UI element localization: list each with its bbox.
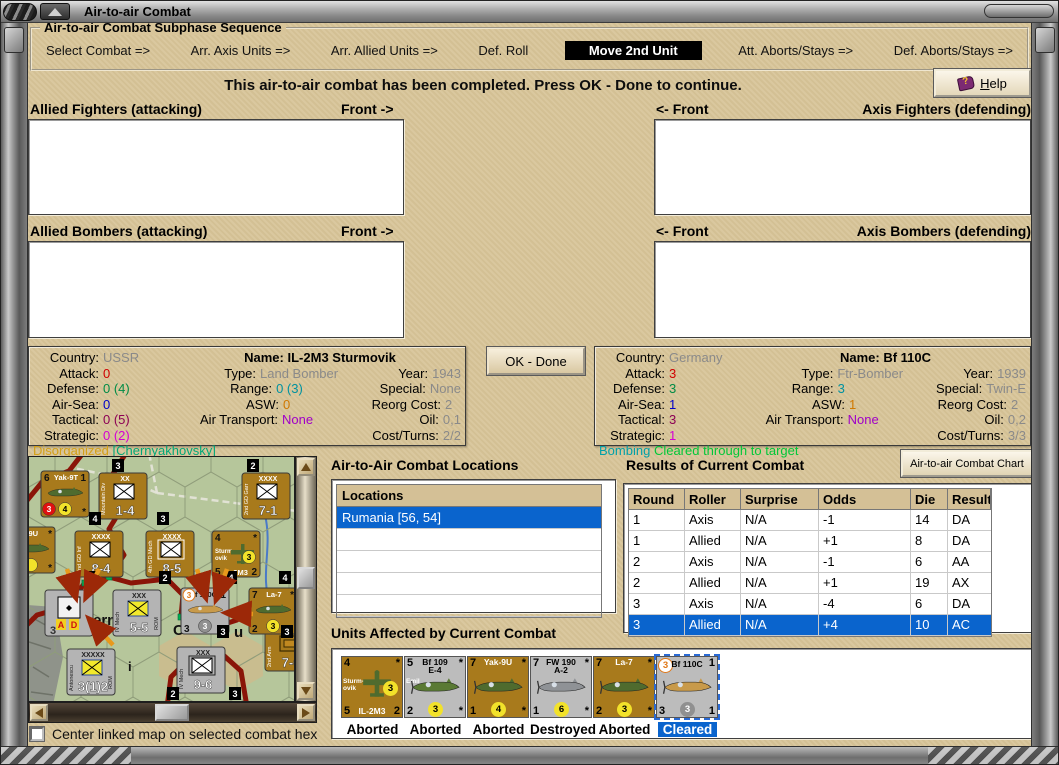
svg-text:4: 4 (215, 533, 221, 544)
front-arrow-label: Front -> (341, 223, 394, 239)
allied-unit-name: Name: IL-2M3 Sturmovik (179, 350, 461, 366)
help-book-icon (957, 75, 975, 91)
svg-text:XXX: XXX (132, 593, 146, 600)
svg-text:XXXX: XXXX (259, 476, 278, 483)
svg-text:3: 3 (203, 621, 208, 631)
sequence-step-6: Att. Aborts/Stays => (734, 41, 857, 60)
plane-icon (662, 677, 714, 695)
axis-asw: 1 (849, 397, 856, 413)
titlebar-end-decoration (984, 4, 1054, 18)
front-arrow-label: Front -> (341, 101, 394, 117)
scroll-right-icon (302, 708, 310, 718)
svg-text:Mountain Div: Mountain Div (101, 483, 107, 515)
allied-costturns: 2/2 (443, 428, 461, 444)
unit-counter[interactable]: 7La-7*2*3 (593, 656, 655, 718)
location-row-empty[interactable] (337, 529, 601, 551)
scroll-left-icon (35, 708, 43, 718)
sequence-step-1: Select Combat => (42, 41, 154, 60)
allied-defense: 0 (4) (103, 381, 130, 397)
counter-bname: IL-2M3 (342, 706, 402, 716)
axis-country: Germany (669, 350, 722, 366)
axis-bombers-label: Axis Bombers (defending) (857, 223, 1031, 239)
combat-results-title: Results of Current Combat (626, 457, 804, 473)
svg-text:5-5: 5-5 (130, 620, 149, 635)
sequence-step-2: Arr. Axis Units => (187, 41, 295, 60)
scroll-left-button[interactable] (30, 704, 48, 721)
result-row[interactable]: 2AlliedN/A+119AX PX (629, 573, 991, 594)
subphase-sequence-steps: Select Combat =>Arr. Axis Units =>Arr. A… (32, 41, 1027, 60)
svg-text:4: 4 (228, 573, 233, 583)
svg-text:4: 4 (92, 514, 97, 524)
svg-text:3: 3 (232, 689, 237, 699)
allied-fighters-list[interactable] (28, 119, 404, 215)
combat-locations-box: LocationsRumania [56, 54] (331, 479, 616, 613)
counter-circle: 3 (680, 702, 695, 717)
affected-unit-yak-9u: 7Yak-9U*1*4Aborted (467, 656, 530, 737)
plane-icon-wrap (473, 677, 525, 698)
map-vertical-scrollbar[interactable] (295, 456, 317, 702)
allied-asw: 0 (283, 397, 290, 413)
dialog-content: Air-to-air Combat Subphase Sequence Sele… (28, 23, 1033, 746)
unit-status: Aborted (341, 722, 404, 737)
svg-text:3(1)2: 3(1)2 (78, 679, 108, 694)
axis-unit-stats-panel: Country:Germany Name: Bf 110C Attack:3 T… (594, 346, 1031, 446)
result-row[interactable]: 1AxisN/A-114DA (629, 510, 991, 531)
help-button[interactable]: Help (934, 69, 1031, 97)
axis-fighters-label: Axis Fighters (defending) (862, 101, 1031, 117)
results-table: RoundRollerSurpriseOddsDieResult1AxisN/A… (628, 488, 992, 637)
allied-bombers-list[interactable] (28, 241, 404, 338)
plane-icon-wrap (536, 677, 588, 698)
scroll-down-button[interactable] (297, 682, 315, 700)
result-row[interactable]: 1AlliedN/A+18DA (629, 531, 991, 552)
counter-circle: 4 (491, 702, 506, 717)
sequence-step-4: Def. Roll (474, 41, 532, 60)
svg-text:*: * (48, 529, 52, 540)
axis-reorg: 2 (1011, 397, 1018, 413)
allied-airsea: 0 (103, 397, 110, 413)
completion-message: This air-to-air combat has been complete… (28, 77, 938, 94)
svg-text:1: 1 (220, 590, 226, 601)
allied-fighters-label: Allied Fighters (attacking) (30, 101, 202, 117)
counter-tr: * (522, 657, 526, 669)
allied-unit-stats-panel: Country:USSR Name: IL-2M3 Sturmovik Atta… (28, 346, 466, 446)
affected-unit-bf-110c: 3Bf 110C1313Cleared (656, 656, 719, 737)
counter-circle: 3 (383, 681, 398, 696)
counter-br: 1 (709, 705, 715, 717)
counter-title: La-7 (594, 658, 654, 666)
svg-text:9-6: 9-6 (194, 677, 213, 692)
axis-unit-name: Name: Bf 110C (745, 350, 1026, 366)
titlebar: Air-to-air Combat (1, 1, 1058, 23)
svg-text:*: * (82, 507, 86, 518)
triangle-icon (48, 8, 62, 16)
counter-br: * (648, 705, 652, 717)
sequence-step-3: Arr. Allied Units => (327, 41, 442, 60)
axis-airtransport: None (848, 412, 879, 428)
location-row-empty[interactable] (337, 573, 601, 595)
svg-text:*: * (253, 533, 257, 544)
svg-text:3: 3 (184, 624, 190, 635)
front-arrow-label: <- Front (656, 223, 709, 239)
result-row[interactable]: 3AxisN/A-46DA (629, 594, 991, 615)
axis-bombers-list[interactable] (654, 241, 1031, 338)
combat-map: ernCuiXX1-4Mountain DivXXXX7-12nd GD Gar… (28, 456, 318, 724)
counter-side: Sturm-ovik (343, 679, 364, 692)
svg-text:*: * (290, 590, 294, 601)
svg-text:3: 3 (50, 625, 56, 637)
affected-unit-fw-190-a-2: 7FW 190A-2*1*6Destroyed (530, 656, 593, 737)
unit-status: Cleared (656, 722, 719, 737)
svg-text:IV Mech: IV Mech (179, 669, 185, 689)
ok-done-button[interactable]: OK - Done (487, 347, 585, 375)
air-combat-window: Air-to-air Combat Air-to-air Combat Subp… (0, 0, 1059, 765)
allied-reorg: 2 (445, 397, 452, 413)
axis-tactical: 3 (669, 412, 676, 428)
counter-bl: 2 (407, 705, 413, 717)
unit-counter[interactable]: 4*Sturm-ovik52IL-2M33 (341, 656, 403, 718)
svg-text:D: D (71, 620, 78, 630)
map-horizontal-scrollbar[interactable] (28, 702, 317, 723)
allied-range: 0 (3) (276, 381, 303, 397)
counter-tr: * (648, 657, 652, 669)
vertical-scroll-thumb[interactable] (297, 567, 315, 589)
combat-chart-button[interactable]: Air-to-air Combat Chart (901, 450, 1033, 477)
counter-circle: 3 (428, 702, 443, 717)
counter-br: * (522, 705, 526, 717)
svg-text:1-4: 1-4 (116, 503, 136, 518)
svg-text:2: 2 (250, 461, 255, 471)
svg-text:ROM: ROM (108, 676, 114, 689)
svg-text:Antonescu: Antonescu (69, 665, 75, 691)
result-row[interactable]: 2AxisN/A-16AA (629, 552, 991, 573)
counter-bl: 3 (659, 705, 665, 717)
allied-airtransport: None (282, 412, 313, 428)
svg-text:3: 3 (271, 621, 276, 631)
unit-status: Destroyed (530, 722, 593, 737)
plane-icon (410, 677, 462, 695)
location-row[interactable]: Rumania [56, 54] (337, 507, 601, 529)
svg-text:5: 5 (215, 567, 221, 578)
axis-strategic: 1 (669, 428, 676, 444)
counter-tl: 4 (344, 657, 350, 669)
counter-title: FW 190A-2 (531, 658, 591, 674)
plane-icon-wrap (599, 677, 651, 698)
allied-year: 1943 (432, 366, 461, 382)
svg-text:*: * (48, 563, 52, 574)
axis-range: 3 (838, 381, 845, 397)
svg-text:2: 2 (162, 573, 167, 583)
result-row[interactable]: 3AlliedN/A+410AC (629, 615, 991, 636)
units-affected-title: Units Affected by Current Combat (331, 625, 556, 641)
affected-unit-bf-109-e-4: 5Bf 109E-4*Emil2*3Aborted (404, 656, 467, 737)
svg-text:La-7: La-7 (266, 590, 281, 599)
counter-tr: 1 (709, 657, 715, 669)
allied-special: None (430, 381, 461, 397)
counter-bl: 2 (596, 705, 602, 717)
unit-counter[interactable]: 5Bf 109E-4*Emil2*3 (404, 656, 466, 718)
svg-text:3: 3 (160, 514, 165, 524)
svg-text:IV Mech: IV Mech (115, 612, 121, 632)
minimize-button[interactable] (40, 3, 70, 20)
counter-circle: 6 (554, 702, 569, 717)
axis-oil: 0,2 (1008, 412, 1026, 428)
allied-strategic: 0 (2) (103, 428, 130, 444)
window-frame-left (1, 23, 28, 746)
allied-bombers-label: Allied Bombers (attacking) (30, 223, 207, 239)
axis-special: Twin-E (986, 381, 1026, 397)
svg-text:1: 1 (80, 473, 86, 484)
allied-country: USSR (103, 350, 139, 366)
unit-status: Aborted (467, 722, 530, 737)
svg-text:XX: XX (120, 476, 130, 483)
combat-locations-title: Air-to-Air Combat Locations (331, 457, 518, 473)
front-arrow-label: <- Front (656, 101, 709, 117)
axis-year: 1939 (997, 366, 1026, 382)
locations-header: Locations (337, 485, 601, 507)
sequence-step-7: Def. Aborts/Stays => (890, 41, 1017, 60)
axis-attack: 3 (669, 366, 676, 382)
affected-unit-il-2m3: 4*Sturm-ovik52IL-2M33Aborted (341, 656, 404, 737)
window-frame-bottom (1, 746, 1058, 765)
plane-icon (473, 677, 525, 695)
axis-costturns: 3/3 (1008, 428, 1026, 444)
svg-text:ROM: ROM (154, 617, 160, 630)
counter-bl: 1 (533, 705, 539, 717)
frame-knob (4, 27, 24, 53)
svg-text:2: 2 (252, 624, 258, 635)
unit-status: Aborted (593, 722, 656, 737)
svg-text:2: 2 (170, 689, 175, 699)
unit-counter[interactable]: 7FW 190A-2*1*6 (530, 656, 592, 718)
counter-tr: * (396, 657, 400, 669)
location-row-empty[interactable] (337, 595, 601, 617)
scroll-down-icon (301, 687, 311, 695)
counter-tr: * (585, 657, 589, 669)
unit-status: Aborted (404, 722, 467, 737)
svg-text:3: 3 (187, 591, 192, 600)
unit-counter[interactable]: 3Bf 110C1313 (656, 656, 718, 718)
center-map-checkbox[interactable] (30, 727, 44, 741)
units-affected-strip: 4*Sturm-ovik52IL-2M33Aborted5Bf 109E-4*E… (341, 656, 719, 737)
counter-br: * (585, 705, 589, 717)
scroll-up-button[interactable] (297, 458, 315, 476)
svg-text:3: 3 (47, 504, 52, 514)
axis-airsea: 1 (669, 397, 676, 413)
window-menu-icon[interactable] (3, 3, 37, 21)
svg-text:A: A (58, 620, 65, 630)
plane-icon-wrap (410, 677, 462, 698)
svg-text:2nd GD Inf: 2nd GD Inf (77, 546, 83, 573)
svg-text:u: u (234, 624, 243, 641)
window-frame-right (1031, 23, 1058, 746)
axis-defense: 3 (669, 381, 676, 397)
map-viewport[interactable]: ernCuiXX1-4Mountain DivXXXX7-12nd GD Gar… (28, 456, 295, 702)
svg-text:i: i (128, 659, 132, 674)
counter-tr: * (459, 657, 463, 669)
allied-type: Land Bomber (260, 366, 338, 382)
scroll-right-button[interactable] (297, 704, 315, 721)
plane-icon (599, 677, 651, 695)
svg-text:ovik: ovik (215, 556, 228, 562)
units-affected-box: 4*Sturm-ovik52IL-2M33Aborted5Bf 109E-4*E… (331, 648, 1033, 739)
svg-text:7-1: 7-1 (259, 503, 278, 518)
locations-table: LocationsRumania [56, 54] (336, 484, 602, 618)
svg-text:4: 4 (63, 504, 68, 514)
unit-counter[interactable]: 7Yak-9U*1*4 (467, 656, 529, 718)
location-row-empty[interactable] (337, 551, 601, 573)
combat-results-box: RoundRollerSurpriseOddsDieResult1AxisN/A… (623, 483, 1033, 633)
allied-oil: 0,1 (443, 412, 461, 428)
center-map-checkbox-label: Center linked map on selected combat hex (52, 726, 317, 742)
svg-text:3: 3 (115, 461, 120, 471)
counter-br: * (459, 705, 463, 717)
svg-text:-9U: -9U (29, 529, 38, 538)
counter-circle: 3 (617, 702, 632, 717)
svg-text:Yak-9T: Yak-9T (54, 473, 79, 482)
svg-text:4: 4 (282, 573, 287, 583)
svg-text:2nd GD Garr: 2nd GD Garr (244, 483, 250, 515)
svg-text:XXXXX: XXXXX (81, 652, 105, 659)
subphase-sequence-group: Air-to-air Combat Subphase Sequence Sele… (30, 27, 1029, 71)
counter-title: Bf 109E-4 (405, 658, 465, 674)
counter-title: Yak-9U (468, 658, 528, 666)
svg-text:3: 3 (247, 552, 252, 562)
allied-tactical: 0 (5) (103, 412, 130, 428)
horizontal-scroll-thumb[interactable] (155, 704, 189, 721)
axis-type: Ftr-Bomber (837, 366, 903, 382)
frame-knob (1035, 27, 1055, 53)
allied-attack: 0 (103, 366, 110, 382)
counter-bl: 1 (470, 705, 476, 717)
plane-icon-wrap (662, 677, 714, 698)
scroll-up-icon (301, 463, 311, 471)
affected-unit-la-7: 7La-7*2*3Aborted (593, 656, 656, 737)
svg-text:7: 7 (252, 590, 258, 601)
svg-text:6: 6 (44, 473, 50, 484)
plane-icon (536, 677, 588, 695)
window-title: Air-to-air Combat (84, 4, 191, 19)
svg-text:2nd Arm: 2nd Arm (267, 646, 273, 667)
svg-text:3: 3 (220, 627, 225, 637)
axis-fighters-list[interactable] (654, 119, 1031, 215)
sequence-step-5: Move 2nd Unit (565, 41, 702, 60)
svg-text:4th GD Mech: 4th GD Mech (148, 541, 154, 573)
svg-text:3: 3 (284, 627, 289, 637)
svg-text:2: 2 (251, 567, 257, 578)
results-header: RoundRollerSurpriseOddsDieResult (629, 489, 991, 510)
svg-text:7-6: 7-6 (282, 655, 295, 670)
svg-text:XXXX: XXXX (92, 534, 111, 541)
